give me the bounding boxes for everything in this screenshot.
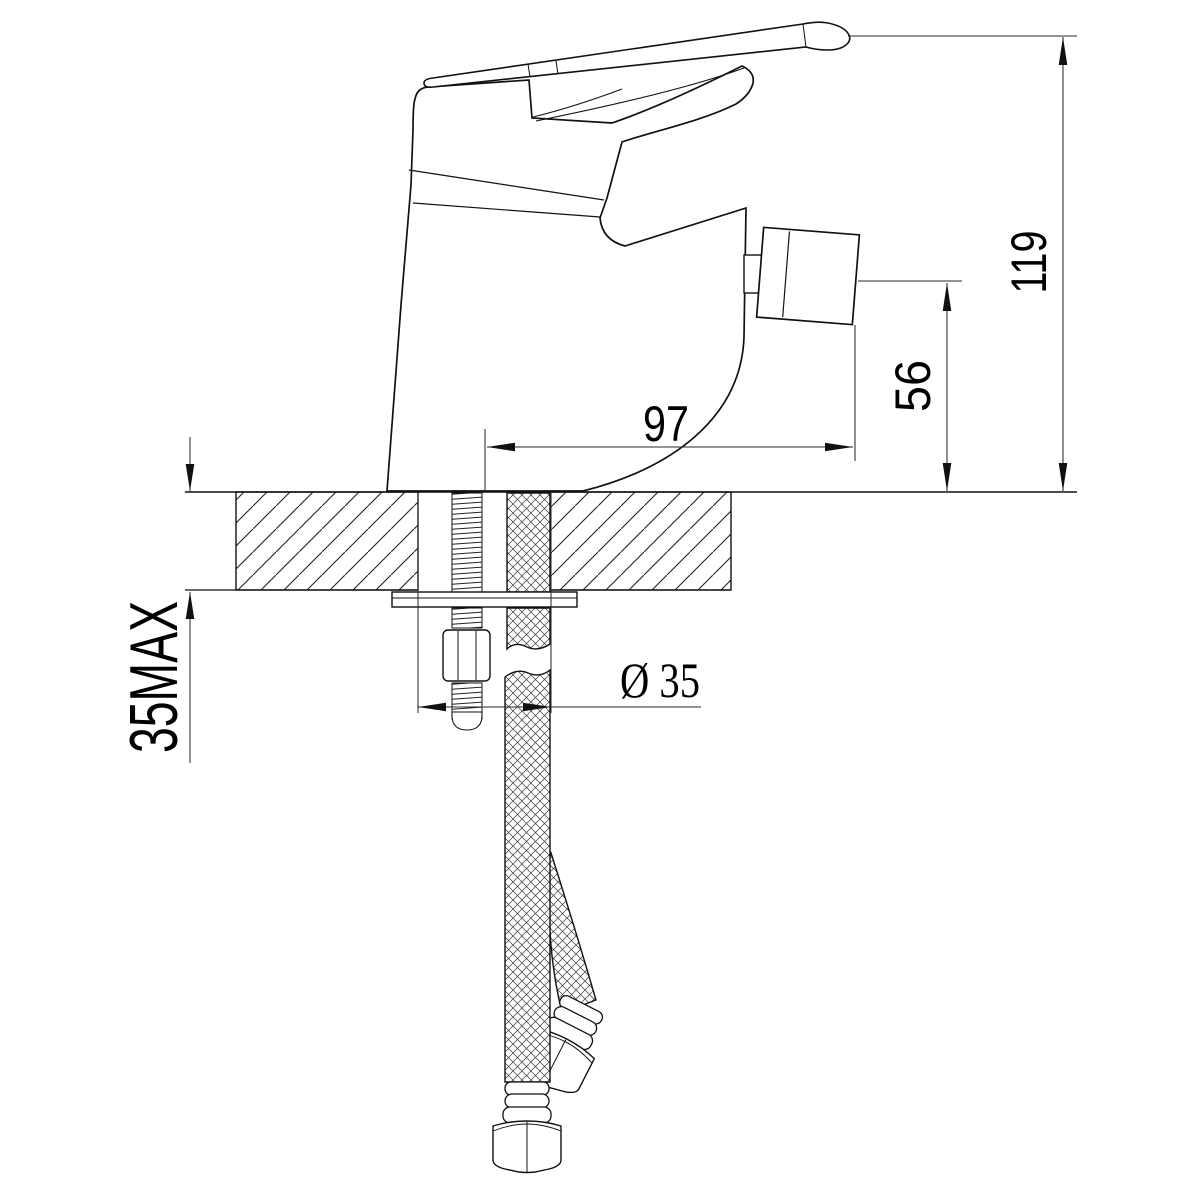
dimension-label-35max: 35MAX [116,601,192,753]
diagonal-hose-braid [549,853,596,1013]
dimension-label-diameter: Ø 35 [620,652,700,708]
handle-lever [424,22,850,87]
arrowhead-down [943,463,952,491]
mounting-hex-nut [443,630,490,681]
hose-segment-break-top [507,608,550,649]
hose-segment-long [505,670,550,1082]
sprayer-head [744,227,859,324]
arrowhead-left [418,703,446,712]
threaded-stud [452,493,482,730]
ferrule-ring [505,1094,549,1108]
vertical-hose-fitting [493,1082,561,1173]
dimension-deck-thickness: 35MAX [116,437,194,763]
arrowhead-down [1059,463,1068,491]
arrowhead-up [943,283,952,311]
arrowhead-down [186,464,195,491]
countertop-right-block [550,492,731,590]
countertop-left-block [236,492,418,590]
washer-plate [392,592,577,607]
dimension-overall-height: 119 [848,36,1077,491]
lever-blade [424,22,850,87]
arrowhead-right [825,443,853,452]
stud-mid-segment [452,608,482,628]
dimension-label-119: 119 [1001,231,1057,294]
dimension-label-56: 56 [885,360,941,412]
ferrule-ring [505,1082,549,1095]
stud-upper-segment [452,493,482,592]
faucet-body [387,66,753,491]
dimension-label-97: 97 [643,396,689,452]
faucet-body-outline [387,66,753,491]
stud-tip [452,712,482,730]
faucet-dimension-diagram: 119 56 97 Ø 35 35MAX [0,0,1200,1200]
hose-segment-in-hole [507,493,550,592]
arrowhead-up [1059,37,1068,65]
sprayer-head-body [757,227,860,324]
dimension-outlet-height: 56 [858,281,962,491]
technical-drawing-page: 119 56 97 Ø 35 35MAX [0,0,1200,1200]
